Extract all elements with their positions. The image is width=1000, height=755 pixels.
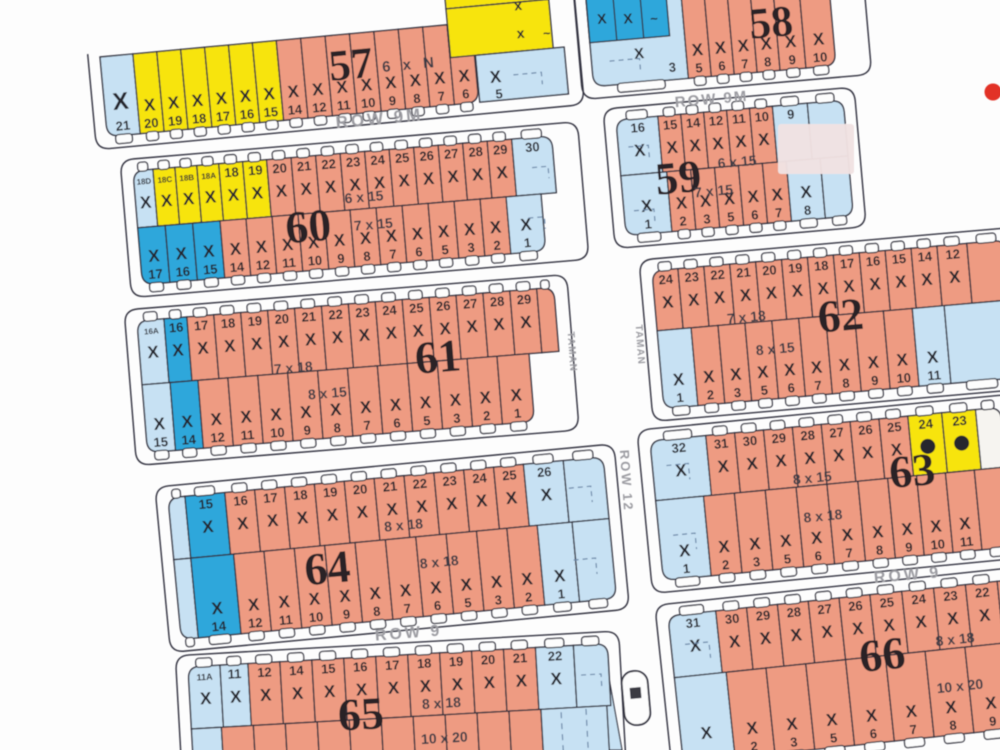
svg-text:X: X <box>227 185 241 205</box>
svg-text:16: 16 <box>233 493 249 509</box>
svg-text:X: X <box>182 189 196 209</box>
svg-text:3: 3 <box>733 385 742 401</box>
svg-text:18D: 18D <box>136 177 152 187</box>
svg-text:16A: 16A <box>144 326 160 336</box>
svg-text:8: 8 <box>764 54 773 70</box>
svg-text:7 x 15: 7 x 15 <box>353 214 393 233</box>
svg-text:X: X <box>240 407 253 427</box>
svg-text:2: 2 <box>679 213 688 229</box>
svg-text:X: X <box>324 177 338 197</box>
svg-text:6 x 15: 6 x 15 <box>717 152 757 171</box>
svg-text:10: 10 <box>307 253 323 269</box>
svg-text:17: 17 <box>148 266 164 282</box>
svg-text:20: 20 <box>352 481 368 497</box>
svg-text:X: X <box>437 222 451 242</box>
svg-text:X: X <box>196 338 209 358</box>
svg-text:X: X <box>230 687 243 707</box>
svg-text:3: 3 <box>789 734 798 750</box>
svg-text:X: X <box>181 412 194 432</box>
svg-text:11: 11 <box>336 97 351 113</box>
svg-text:7 x 18: 7 x 18 <box>726 307 766 326</box>
svg-text:64: 64 <box>302 540 353 595</box>
svg-text:9: 9 <box>337 251 345 267</box>
svg-text:24: 24 <box>658 271 674 287</box>
svg-text:X: X <box>389 395 402 415</box>
svg-text:12: 12 <box>257 664 272 680</box>
svg-text:27: 27 <box>462 296 478 312</box>
svg-text:29: 29 <box>516 291 532 307</box>
svg-text:X: X <box>147 342 160 362</box>
svg-text:7 x 15: 7 x 15 <box>693 181 733 200</box>
svg-text:3: 3 <box>703 211 712 227</box>
svg-text:14: 14 <box>917 249 933 265</box>
svg-text:16: 16 <box>239 106 255 122</box>
svg-text:24: 24 <box>382 302 398 318</box>
svg-text:29: 29 <box>755 607 771 623</box>
svg-text:1: 1 <box>523 235 531 251</box>
svg-text:7: 7 <box>845 545 854 561</box>
svg-text:6 x 15: 6 x 15 <box>344 187 384 206</box>
svg-text:60: 60 <box>283 199 333 254</box>
svg-text:20: 20 <box>762 262 778 278</box>
svg-text:5: 5 <box>783 551 792 567</box>
svg-text:28: 28 <box>800 427 816 443</box>
svg-text:23: 23 <box>952 413 968 429</box>
svg-text:24: 24 <box>911 591 928 608</box>
svg-text:22: 22 <box>547 648 562 664</box>
svg-text:22: 22 <box>974 584 990 600</box>
svg-text:66: 66 <box>857 627 908 683</box>
svg-text:16: 16 <box>175 264 191 280</box>
svg-text:18B: 18B <box>179 173 195 183</box>
svg-text:9: 9 <box>342 606 351 622</box>
svg-text:28: 28 <box>786 604 802 620</box>
svg-text:X: X <box>299 402 312 422</box>
svg-text:19: 19 <box>448 654 463 670</box>
svg-text:17: 17 <box>215 108 231 124</box>
svg-text:28: 28 <box>468 144 484 160</box>
svg-text:11: 11 <box>927 367 942 383</box>
svg-text:8: 8 <box>803 202 812 218</box>
svg-text:19: 19 <box>167 113 183 129</box>
svg-text:10: 10 <box>930 536 946 552</box>
svg-text:29: 29 <box>771 430 787 446</box>
svg-text:5: 5 <box>441 242 449 258</box>
svg-text:20: 20 <box>143 115 159 131</box>
svg-text:15: 15 <box>891 251 907 267</box>
svg-text:20: 20 <box>480 652 495 668</box>
svg-text:12: 12 <box>312 99 328 115</box>
svg-text:19: 19 <box>787 260 803 276</box>
svg-text:9: 9 <box>388 93 397 109</box>
svg-text:X: X <box>323 682 336 702</box>
svg-text:X: X <box>260 685 273 705</box>
svg-text:X: X <box>112 88 130 116</box>
svg-text:21: 21 <box>512 650 527 666</box>
svg-text:8: 8 <box>842 375 851 391</box>
svg-text:29: 29 <box>492 142 508 158</box>
svg-text:2: 2 <box>483 408 491 424</box>
svg-text:X: X <box>385 323 398 343</box>
svg-text:22: 22 <box>412 476 428 492</box>
svg-text:X: X <box>210 409 223 429</box>
svg-text:7: 7 <box>363 418 371 434</box>
svg-text:14: 14 <box>289 663 305 679</box>
svg-text:X: X <box>250 334 263 354</box>
svg-text:25: 25 <box>394 150 410 166</box>
svg-text:X: X <box>479 388 492 408</box>
svg-text:11: 11 <box>240 427 255 443</box>
svg-text:x: x <box>513 0 522 13</box>
svg-text:16: 16 <box>630 120 646 136</box>
svg-text:15: 15 <box>198 496 214 512</box>
svg-text:18: 18 <box>813 258 829 274</box>
svg-text:23: 23 <box>942 588 958 604</box>
svg-text:25: 25 <box>879 594 895 610</box>
svg-text:8: 8 <box>875 542 884 558</box>
svg-text:X: X <box>419 393 432 413</box>
svg-text:2: 2 <box>493 238 501 254</box>
svg-text:10: 10 <box>812 49 828 65</box>
svg-text:X: X <box>451 675 464 695</box>
svg-text:X: X <box>277 332 290 352</box>
svg-text:7: 7 <box>389 246 397 262</box>
svg-text:8: 8 <box>949 717 958 733</box>
svg-text:9: 9 <box>905 539 914 555</box>
svg-text:X: X <box>204 187 218 207</box>
svg-text:17: 17 <box>385 657 400 673</box>
svg-text:5: 5 <box>495 86 504 102</box>
svg-text:12: 12 <box>247 615 263 631</box>
svg-text:9: 9 <box>786 106 795 122</box>
svg-text:14: 14 <box>211 618 228 634</box>
svg-text:7: 7 <box>909 722 918 738</box>
svg-text:11: 11 <box>227 666 242 682</box>
svg-text:23: 23 <box>345 154 361 170</box>
svg-text:5: 5 <box>464 595 473 611</box>
svg-text:30: 30 <box>724 611 740 627</box>
svg-text:1: 1 <box>644 216 653 232</box>
svg-text:X: X <box>387 678 400 698</box>
svg-text:8: 8 <box>413 91 422 107</box>
svg-text:62: 62 <box>815 288 865 343</box>
svg-text:X: X <box>463 220 477 240</box>
svg-text:1: 1 <box>513 406 521 422</box>
svg-text:17: 17 <box>839 255 855 271</box>
svg-text:15: 15 <box>153 434 169 450</box>
svg-text:X: X <box>160 191 174 211</box>
svg-text:X: X <box>223 336 236 356</box>
svg-text:12: 12 <box>255 257 271 273</box>
svg-text:X: X <box>153 414 166 434</box>
svg-text:18: 18 <box>292 487 308 503</box>
svg-text:8 x 15: 8 x 15 <box>755 339 795 358</box>
svg-text:61: 61 <box>413 329 463 384</box>
svg-text:X: X <box>255 237 269 257</box>
svg-text:X: X <box>447 167 461 187</box>
svg-text:12: 12 <box>708 113 724 129</box>
svg-text:11A: 11A <box>196 672 213 683</box>
svg-text:25: 25 <box>409 300 425 316</box>
svg-text:7 x 18: 7 x 18 <box>273 358 313 377</box>
svg-text:30: 30 <box>525 139 541 155</box>
svg-text:X: X <box>471 165 485 185</box>
svg-text:15: 15 <box>202 261 218 277</box>
svg-text:26: 26 <box>857 422 873 438</box>
svg-text:8 x 18: 8 x 18 <box>422 694 462 712</box>
svg-text:16: 16 <box>353 659 368 675</box>
svg-text:19: 19 <box>322 484 338 500</box>
svg-text:X: X <box>449 390 462 410</box>
svg-text:24: 24 <box>472 470 489 486</box>
svg-text:X: X <box>489 217 503 237</box>
svg-text:11: 11 <box>959 533 974 549</box>
svg-text:X: X <box>148 246 162 266</box>
svg-text:16: 16 <box>168 319 184 335</box>
svg-text:1: 1 <box>557 586 566 602</box>
svg-text:17: 17 <box>263 490 279 506</box>
svg-text:2: 2 <box>721 557 730 573</box>
svg-text:9: 9 <box>788 52 797 68</box>
svg-text:X: X <box>466 317 479 337</box>
svg-text:25: 25 <box>501 467 517 483</box>
svg-text:X: X <box>229 239 243 259</box>
svg-text:5: 5 <box>829 730 838 746</box>
svg-text:11: 11 <box>282 255 297 271</box>
svg-text:X: X <box>251 183 265 203</box>
svg-text:26: 26 <box>435 298 451 314</box>
svg-text:20: 20 <box>272 160 288 176</box>
svg-text:X: X <box>202 241 216 261</box>
svg-text:16: 16 <box>865 253 881 269</box>
svg-text:2: 2 <box>706 387 715 403</box>
svg-text:5: 5 <box>727 209 736 225</box>
svg-text:7: 7 <box>741 56 750 72</box>
svg-text:7: 7 <box>437 88 446 104</box>
svg-text:31: 31 <box>713 436 729 452</box>
svg-text:12: 12 <box>945 246 961 262</box>
svg-text:22: 22 <box>321 156 337 172</box>
svg-text:25: 25 <box>886 419 902 435</box>
svg-text:22: 22 <box>328 306 344 322</box>
svg-text:10: 10 <box>896 370 912 386</box>
svg-text:18: 18 <box>224 164 240 180</box>
svg-text:15: 15 <box>662 117 678 133</box>
svg-text:3: 3 <box>752 554 761 570</box>
svg-text:6: 6 <box>869 726 878 742</box>
svg-text:X: X <box>519 312 532 332</box>
svg-text:9: 9 <box>871 373 880 389</box>
svg-text:31: 31 <box>685 615 701 631</box>
svg-text:58: 58 <box>747 0 795 49</box>
svg-text:24: 24 <box>370 152 386 168</box>
svg-text:X: X <box>419 676 432 696</box>
svg-text:X: X <box>493 315 506 335</box>
svg-text:X: X <box>275 181 289 201</box>
svg-text:1: 1 <box>676 390 685 406</box>
svg-text:26: 26 <box>847 598 863 614</box>
svg-text:7: 7 <box>814 378 823 394</box>
svg-text:18C: 18C <box>157 175 173 185</box>
svg-text:21: 21 <box>301 309 317 325</box>
svg-text:3: 3 <box>453 410 461 426</box>
svg-text:63: 63 <box>887 443 938 498</box>
svg-text:X: X <box>304 330 317 350</box>
svg-text:10: 10 <box>754 109 770 125</box>
svg-text:15: 15 <box>263 104 279 120</box>
svg-text:10: 10 <box>270 425 286 441</box>
svg-text:6: 6 <box>415 244 423 260</box>
svg-text:9: 9 <box>988 713 997 729</box>
svg-text:3: 3 <box>494 592 503 608</box>
svg-text:X: X <box>329 400 342 420</box>
svg-text:X: X <box>550 669 563 689</box>
svg-text:3: 3 <box>668 59 677 75</box>
svg-text:8: 8 <box>333 420 341 436</box>
svg-text:8 x 15: 8 x 15 <box>307 383 347 402</box>
svg-text:X: X <box>411 224 425 244</box>
svg-text:17: 17 <box>193 317 209 333</box>
svg-text:X: X <box>270 405 283 425</box>
svg-text:7: 7 <box>774 205 783 221</box>
svg-text:6: 6 <box>393 415 401 431</box>
svg-text:57: 57 <box>327 38 375 91</box>
svg-text:15: 15 <box>321 661 336 677</box>
svg-text:18: 18 <box>417 655 432 671</box>
svg-text:19: 19 <box>247 313 263 329</box>
svg-text:7: 7 <box>403 601 412 617</box>
svg-text:18: 18 <box>220 315 236 331</box>
svg-text:26: 26 <box>536 464 552 480</box>
svg-text:X: X <box>331 327 344 347</box>
svg-text:X: X <box>515 671 528 691</box>
svg-text:3: 3 <box>467 240 475 256</box>
svg-text:20: 20 <box>274 311 290 327</box>
svg-text:28: 28 <box>489 294 505 310</box>
svg-text:22: 22 <box>710 267 726 283</box>
svg-text:6: 6 <box>787 380 796 396</box>
svg-text:2: 2 <box>524 589 533 605</box>
svg-text:X: X <box>510 385 523 405</box>
svg-text:8: 8 <box>363 248 371 264</box>
svg-text:10 x 20: 10 x 20 <box>421 728 469 747</box>
svg-text:X: X <box>496 163 510 183</box>
svg-text:11: 11 <box>278 612 293 628</box>
svg-text:10: 10 <box>308 609 324 625</box>
svg-text:14: 14 <box>685 115 701 131</box>
svg-text:27: 27 <box>829 424 845 440</box>
svg-text:X: X <box>291 684 304 704</box>
svg-text:21: 21 <box>382 478 398 494</box>
svg-text:26: 26 <box>419 148 435 164</box>
svg-text:23: 23 <box>355 304 371 320</box>
svg-text:X: X <box>359 397 372 417</box>
svg-text:X: X <box>172 340 185 360</box>
svg-text:21: 21 <box>736 264 752 280</box>
svg-text:X: X <box>200 689 213 709</box>
svg-text:12: 12 <box>210 429 226 445</box>
svg-text:X: X <box>175 244 189 264</box>
svg-text:30: 30 <box>742 433 758 449</box>
svg-text:X: X <box>139 193 153 213</box>
svg-text:5: 5 <box>423 413 431 429</box>
svg-text:21: 21 <box>296 158 312 174</box>
svg-text:19: 19 <box>248 162 264 178</box>
svg-text:23: 23 <box>442 473 458 489</box>
svg-text:X: X <box>422 169 436 189</box>
svg-text:1: 1 <box>682 561 691 577</box>
svg-text:5: 5 <box>760 382 769 398</box>
svg-text:6: 6 <box>751 207 760 223</box>
svg-text:14: 14 <box>181 432 197 448</box>
svg-text:65: 65 <box>337 687 386 740</box>
svg-text:14: 14 <box>229 259 245 275</box>
svg-text:X: X <box>333 230 347 250</box>
svg-text:23: 23 <box>684 269 700 285</box>
svg-text:32: 32 <box>671 440 687 456</box>
svg-text:27: 27 <box>443 146 459 162</box>
svg-text:18: 18 <box>191 110 207 126</box>
svg-text:6: 6 <box>461 86 470 102</box>
svg-text:X: X <box>358 325 371 345</box>
svg-text:14: 14 <box>287 102 304 118</box>
svg-text:24: 24 <box>918 416 935 432</box>
svg-text:6: 6 <box>718 58 727 74</box>
svg-text:6: 6 <box>814 548 823 564</box>
svg-text:11: 11 <box>731 111 746 127</box>
svg-text:5: 5 <box>695 60 704 76</box>
svg-text:21: 21 <box>115 118 131 134</box>
svg-text:8: 8 <box>372 604 381 620</box>
svg-text:9: 9 <box>303 422 311 438</box>
svg-text:18A: 18A <box>201 171 217 181</box>
svg-text:27: 27 <box>817 601 833 617</box>
svg-text:6: 6 <box>433 598 442 614</box>
svg-text:X: X <box>483 673 496 693</box>
svg-text:X: X <box>398 171 412 191</box>
svg-text:X: X <box>300 179 314 199</box>
